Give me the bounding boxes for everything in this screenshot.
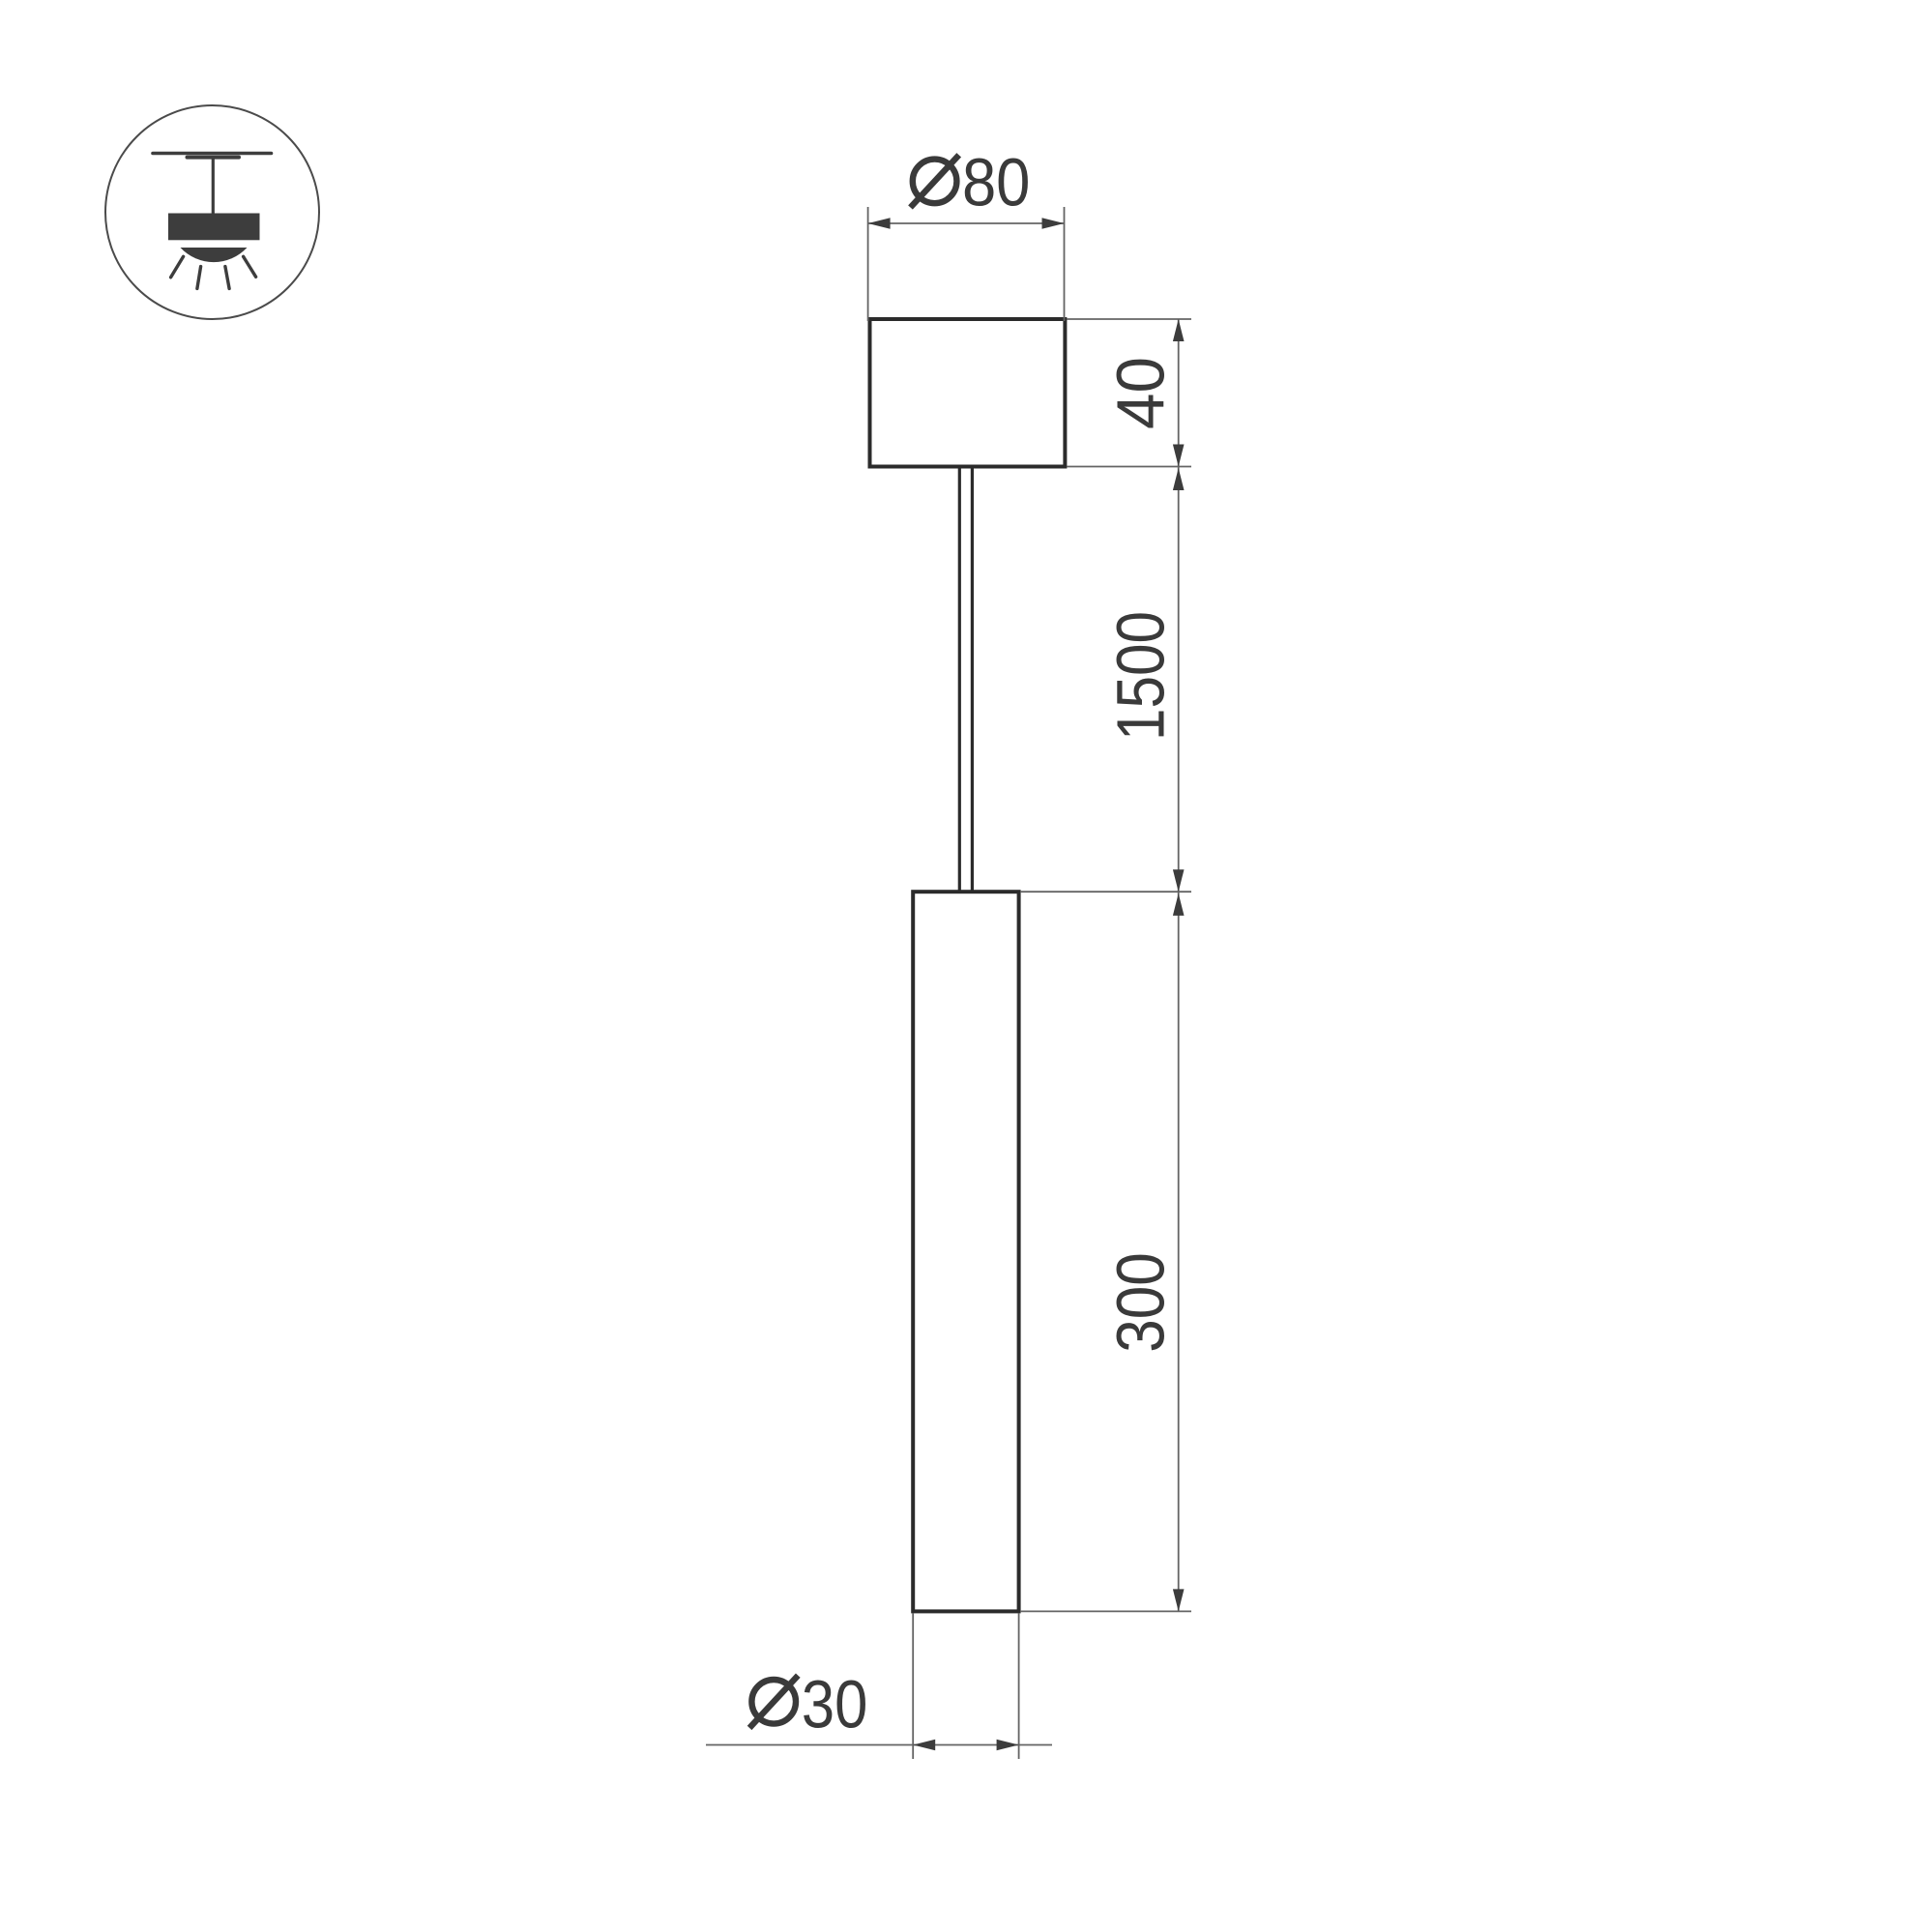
svg-text:40: 40 (1103, 357, 1179, 429)
svg-text:1500: 1500 (1103, 611, 1179, 741)
svg-text:30: 30 (802, 1667, 868, 1742)
svg-text:300: 300 (1103, 1252, 1179, 1353)
svg-text:80: 80 (962, 145, 1031, 220)
